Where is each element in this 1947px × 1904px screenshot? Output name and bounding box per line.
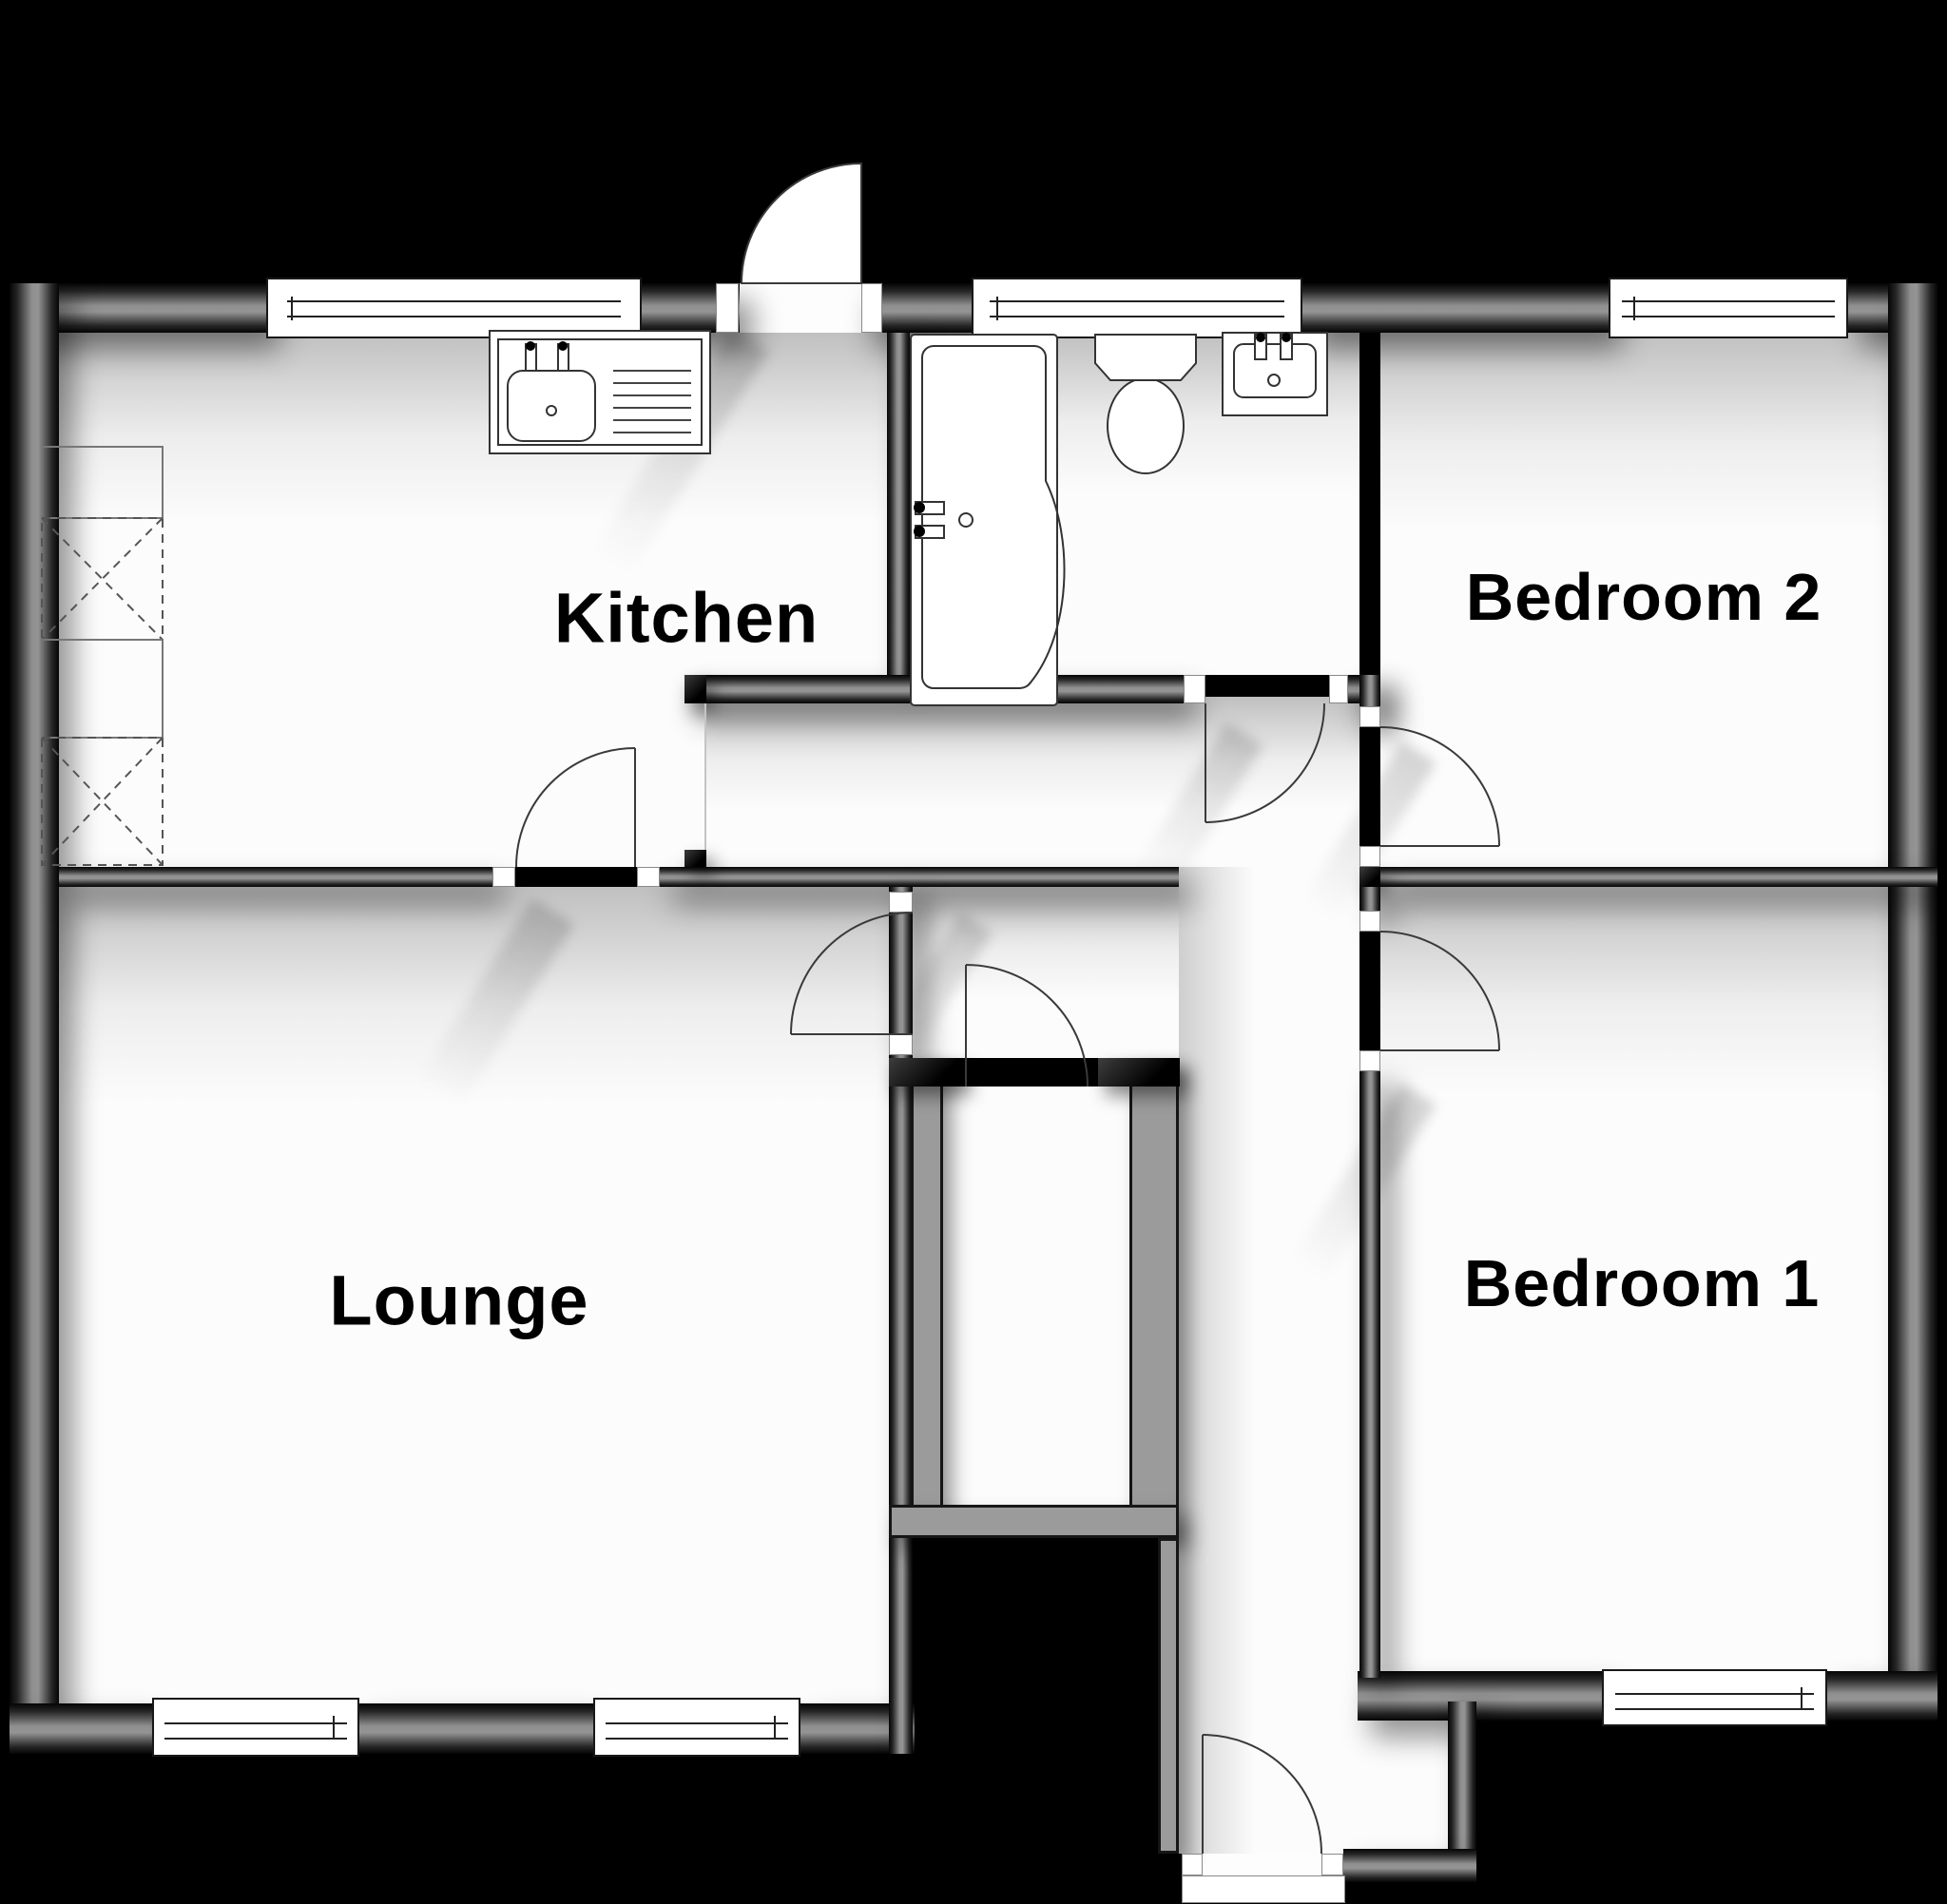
room-label-bedroom1: Bedroom 1	[1464, 1245, 1821, 1321]
kitchen-sink-icon	[490, 331, 710, 453]
appliance-space-icons	[42, 447, 163, 865]
front-door	[1203, 1735, 1321, 1854]
room-label-kitchen: Kitchen	[554, 578, 819, 659]
lounge-door	[791, 913, 913, 1034]
bedroom2-door	[1380, 727, 1499, 846]
room-label-bedroom2: Bedroom 2	[1466, 559, 1822, 635]
kitchen-door	[516, 748, 635, 867]
cupboard-door	[966, 965, 1088, 1087]
basin-icon	[1223, 333, 1327, 415]
rear-entrance-door-leaf-arc	[742, 163, 861, 283]
fixtures-and-doors-overlay	[0, 0, 1947, 1904]
bath-icon	[911, 335, 1065, 705]
floor-plan: Kitchen Lounge Bedroom 2 Bedroom 1	[0, 0, 1947, 1904]
room-label-lounge: Lounge	[329, 1260, 588, 1341]
toilet-icon	[1095, 335, 1196, 473]
bathroom-door	[1205, 703, 1324, 822]
bedroom1-door	[1380, 932, 1499, 1050]
